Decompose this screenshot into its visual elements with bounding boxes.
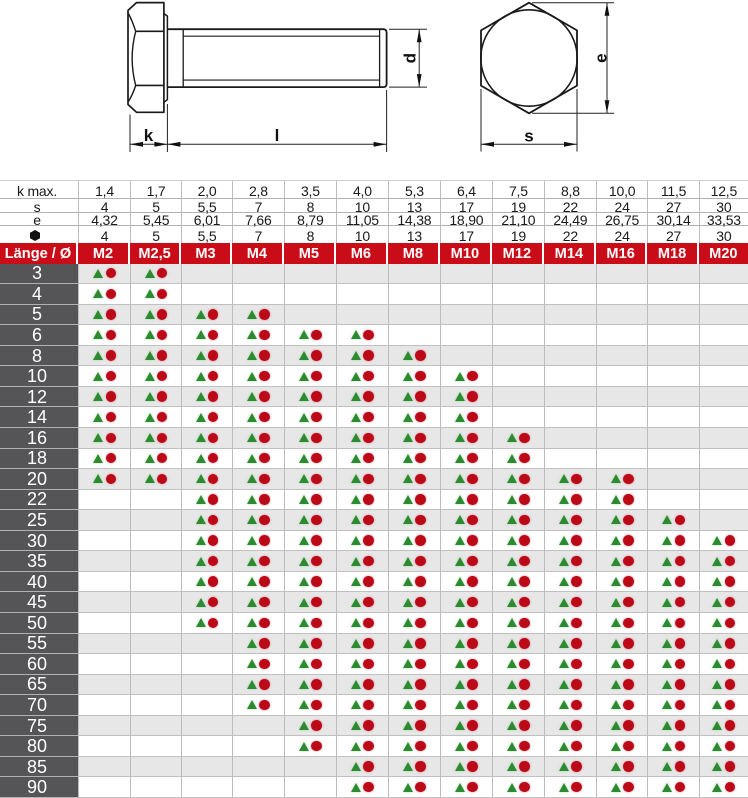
svg-text:e: e [591, 53, 610, 62]
svg-text:l: l [275, 126, 280, 145]
svg-text:k: k [144, 126, 154, 145]
svg-text:d: d [400, 53, 419, 63]
svg-text:s: s [524, 127, 533, 146]
